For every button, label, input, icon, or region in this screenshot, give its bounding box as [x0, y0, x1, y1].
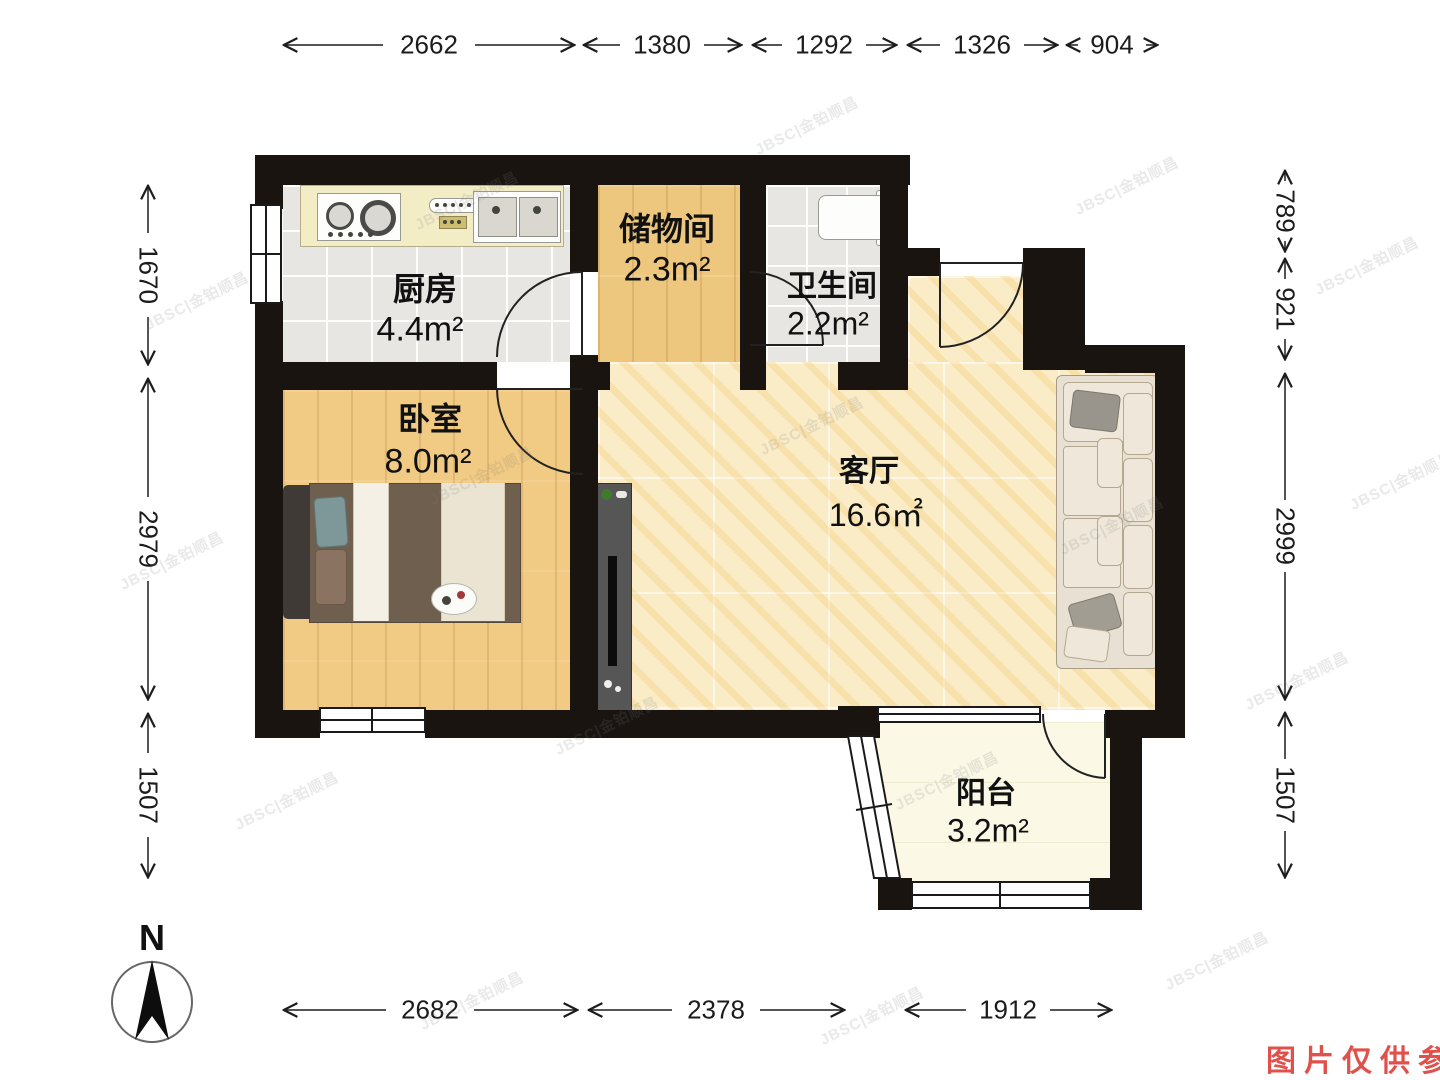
room-area-kitchen: 4.4m²: [377, 311, 464, 350]
bedroom-window: [320, 708, 425, 732]
reference-note: 图片仅供参考: [1266, 1036, 1440, 1080]
dim-right-2: 921: [1270, 287, 1301, 330]
room-label-bedroom: 卧室: [398, 394, 462, 440]
watermark: JBSC|金铂顺昌: [1071, 151, 1182, 220]
watermark: JBSC|金铂顺昌: [751, 91, 862, 160]
dim-left-3: 1507: [133, 766, 164, 824]
compass-icon: [112, 960, 192, 1042]
watermark: JBSC|金铂顺昌: [1311, 231, 1422, 300]
bed: [283, 483, 519, 621]
plant-icon: [601, 489, 612, 500]
watermark: JBSC|金铂顺昌: [816, 981, 927, 1050]
sofa-pillow-gray-top: [1069, 389, 1121, 433]
pillow-teal: [313, 496, 348, 548]
kitchen-window: [251, 205, 281, 303]
burner-right-icon: [360, 200, 396, 236]
wall-right: [1155, 345, 1185, 738]
room-label-bathroom: 卫生间: [787, 261, 877, 305]
dim-right-4: 1507: [1270, 766, 1301, 824]
headboard: [283, 485, 310, 619]
compass-north-label: N: [139, 917, 165, 959]
room-area-bathroom: 2.2m²: [787, 306, 869, 343]
wall-bath-right: [880, 155, 908, 390]
room-area-balcony: 3.2m²: [947, 813, 1029, 850]
dim-top-5: 904: [1090, 30, 1133, 61]
room-area-living: 16.6㎡: [829, 490, 923, 536]
room-label-storage: 储物间: [619, 204, 715, 250]
wall-left: [255, 390, 283, 738]
dim-top-4: 1326: [953, 30, 1011, 61]
bed-runner: [353, 483, 389, 621]
wall-bedroom-living: [570, 390, 598, 710]
watermark: JBSC|金铂顺昌: [1346, 446, 1440, 515]
watermark: JBSC|金铂顺昌: [1161, 926, 1272, 995]
dim-right-1: 789: [1270, 189, 1301, 232]
dim-top-2: 1380: [633, 30, 691, 61]
dim-bottom-2: 2378: [687, 995, 745, 1026]
dim-bottom-3: 1912: [979, 995, 1037, 1026]
pillow-brown: [315, 549, 347, 605]
burner-left-icon: [326, 202, 354, 230]
room-label-kitchen: 厨房: [393, 264, 457, 310]
tv-stand: [595, 483, 632, 712]
stove-icon: [317, 193, 401, 241]
watermark: JBSC|金铂顺昌: [1241, 646, 1352, 715]
dim-top-1: 2662: [400, 30, 458, 61]
room-area-storage: 2.3m²: [624, 251, 711, 290]
entry-floor: [908, 276, 1025, 368]
dim-right-3: 2999: [1270, 507, 1301, 565]
dim-top-3: 1292: [795, 30, 853, 61]
floorplan-canvas: 厨房 4.4m² 储物间 2.3m² 卫生间 2.2m² 卧室 8.0m² 客厅…: [0, 0, 1440, 1080]
wall-storage-bath: [740, 155, 766, 390]
room-label-living: 客厅: [839, 446, 899, 490]
watermark: JBSC|金铂顺昌: [231, 766, 342, 835]
tv-icon: [608, 556, 617, 666]
dim-left-1: 1670: [133, 246, 164, 304]
bed-tray-icon: [431, 583, 477, 615]
